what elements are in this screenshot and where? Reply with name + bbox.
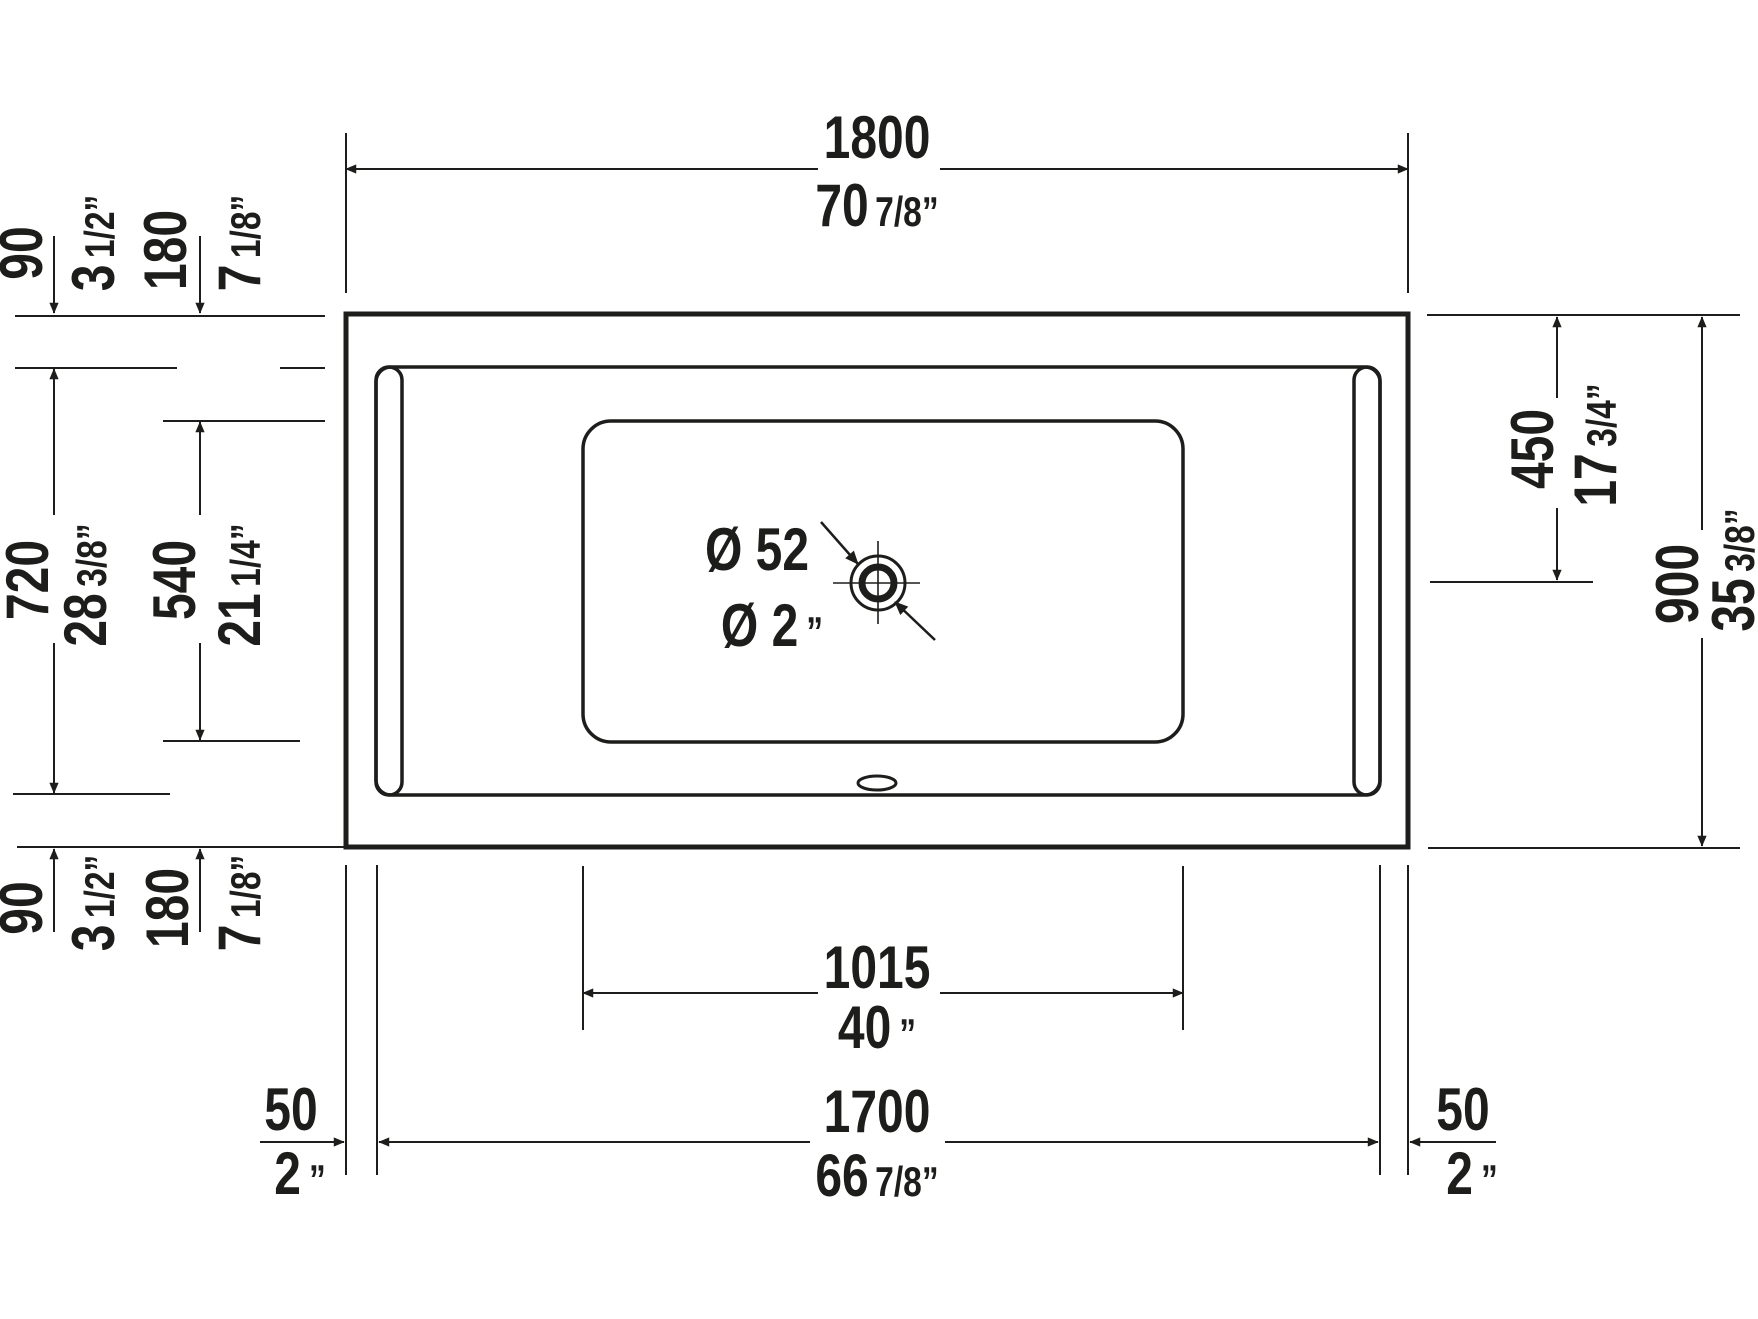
svg-text:667/8”: 667/8” <box>815 1142 938 1209</box>
svg-text:71/8”: 71/8” <box>206 855 273 952</box>
svg-text:90: 90 <box>0 226 55 279</box>
svg-text:450: 450 <box>1499 409 1566 489</box>
label-deck-large-top-mm: 180 <box>132 210 199 290</box>
svg-text:90: 90 <box>0 881 55 934</box>
label-floor-width-mm: 540 <box>141 540 208 620</box>
svg-text:2”: 2” <box>1446 1140 1497 1207</box>
label-deck-large-bottom-mm: 180 <box>134 868 201 948</box>
svg-text:180: 180 <box>134 868 201 948</box>
label-side-deck-right-in: 2” <box>1446 1140 1497 1207</box>
right-overflow-channel <box>1354 367 1380 795</box>
svg-text:707/8”: 707/8” <box>815 172 938 239</box>
label-side-deck-right-mm: 50 <box>1436 1076 1489 1143</box>
svg-text:173/4”: 173/4” <box>1562 383 1629 506</box>
basin-floor-outline <box>583 421 1183 742</box>
svg-text:540: 540 <box>141 540 208 620</box>
svg-text:71/8”: 71/8” <box>206 195 273 292</box>
label-deck-small-bottom-mm: 90 <box>0 881 55 934</box>
svg-text:2”: 2” <box>274 1140 325 1207</box>
svg-text:50: 50 <box>1436 1076 1489 1143</box>
outer-rim-outline <box>346 314 1408 847</box>
label-outer-length-mm: 1800 <box>824 104 931 171</box>
drain-leader-arrow-inner <box>895 602 935 640</box>
overflow-marking <box>858 776 896 790</box>
label-floor-width-in: 211/4” <box>206 523 273 646</box>
label-side-deck-left-in: 2” <box>274 1140 325 1207</box>
svg-text:Ø 2”: Ø 2” <box>721 592 823 659</box>
label-drain-offset-in: 173/4” <box>1562 383 1629 506</box>
technical-drawing-page: 1800 707/8” 90 31/2” 180 71/8” 720 283/8… <box>0 0 1758 1319</box>
label-deck-large-top-in: 71/8” <box>206 195 273 292</box>
drain-symbol <box>821 522 935 640</box>
label-deck-small-bottom-in: 31/2” <box>60 855 127 952</box>
label-floor-length-in: 40” <box>838 994 916 1061</box>
svg-text:1700: 1700 <box>824 1078 931 1145</box>
svg-text:1800: 1800 <box>824 104 931 171</box>
svg-text:1015: 1015 <box>824 934 931 1001</box>
dim-drain-offset <box>1427 315 1740 582</box>
label-inner-length-in: 667/8” <box>815 1142 938 1209</box>
label-side-deck-left-mm: 50 <box>264 1076 317 1143</box>
left-overflow-channel <box>376 367 402 795</box>
label-deck-small-top-mm: 90 <box>0 226 55 279</box>
label-drain-diameter-in: Ø 2” <box>721 592 823 659</box>
svg-text:31/2”: 31/2” <box>60 855 127 952</box>
bathtub-outline <box>346 314 1408 847</box>
label-inner-width-in: 283/8” <box>52 523 119 646</box>
svg-text:283/8”: 283/8” <box>52 523 119 646</box>
drain-leader-arrow-outer <box>821 522 858 564</box>
bathtub-dimension-drawing: 1800 707/8” 90 31/2” 180 71/8” 720 283/8… <box>0 0 1758 1319</box>
label-outer-length-in: 707/8” <box>815 172 938 239</box>
svg-text:50: 50 <box>264 1076 317 1143</box>
svg-text:40”: 40” <box>838 994 916 1061</box>
label-floor-length-mm: 1015 <box>824 934 931 1001</box>
label-drain-diameter-mm: Ø 52 <box>705 516 809 583</box>
label-inner-length-mm: 1700 <box>824 1078 931 1145</box>
label-deck-large-bottom-in: 71/8” <box>206 855 273 952</box>
svg-text:211/4”: 211/4” <box>206 523 273 646</box>
svg-text:180: 180 <box>132 210 199 290</box>
svg-text:31/2”: 31/2” <box>60 195 127 292</box>
label-drain-offset-mm: 450 <box>1499 409 1566 489</box>
svg-text:Ø 52: Ø 52 <box>705 516 809 583</box>
label-deck-small-top-in: 31/2” <box>60 195 127 292</box>
